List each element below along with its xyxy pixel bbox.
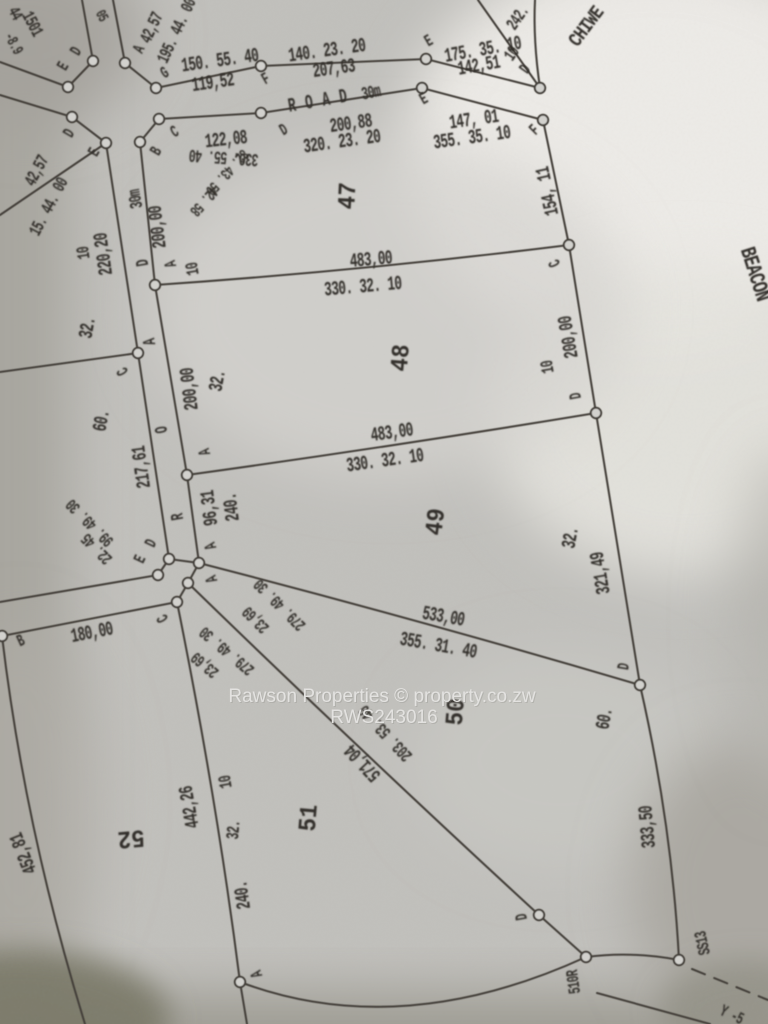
svg-text:240.: 240. — [231, 879, 257, 910]
svg-text:333,50: 333,50 — [636, 804, 662, 849]
svg-text:47: 47 — [334, 182, 364, 210]
svg-text:52: 52 — [116, 822, 145, 853]
svg-text:60.: 60. — [90, 409, 116, 434]
svg-text:240.: 240. — [220, 492, 246, 523]
svg-text:32.: 32. — [559, 526, 585, 551]
svg-text:49: 49 — [421, 507, 452, 537]
svg-text:60.: 60. — [593, 707, 619, 732]
svg-text:51: 51 — [295, 803, 326, 832]
svg-text:32.: 32. — [206, 369, 232, 394]
svg-text:32.: 32. — [223, 820, 246, 841]
svg-text:Rawson Properties © property: Rawson Properties © property.co.zw — [228, 686, 535, 707]
svg-text:96,31: 96,31 — [198, 489, 225, 527]
svg-text:48: 48 — [387, 343, 418, 372]
svg-text:32.: 32. — [76, 316, 102, 341]
svg-text:483,00: 483,00 — [349, 248, 394, 274]
svg-text:RWS243016: RWS243016 — [330, 707, 437, 728]
svg-text:510R: 510R — [564, 968, 586, 995]
